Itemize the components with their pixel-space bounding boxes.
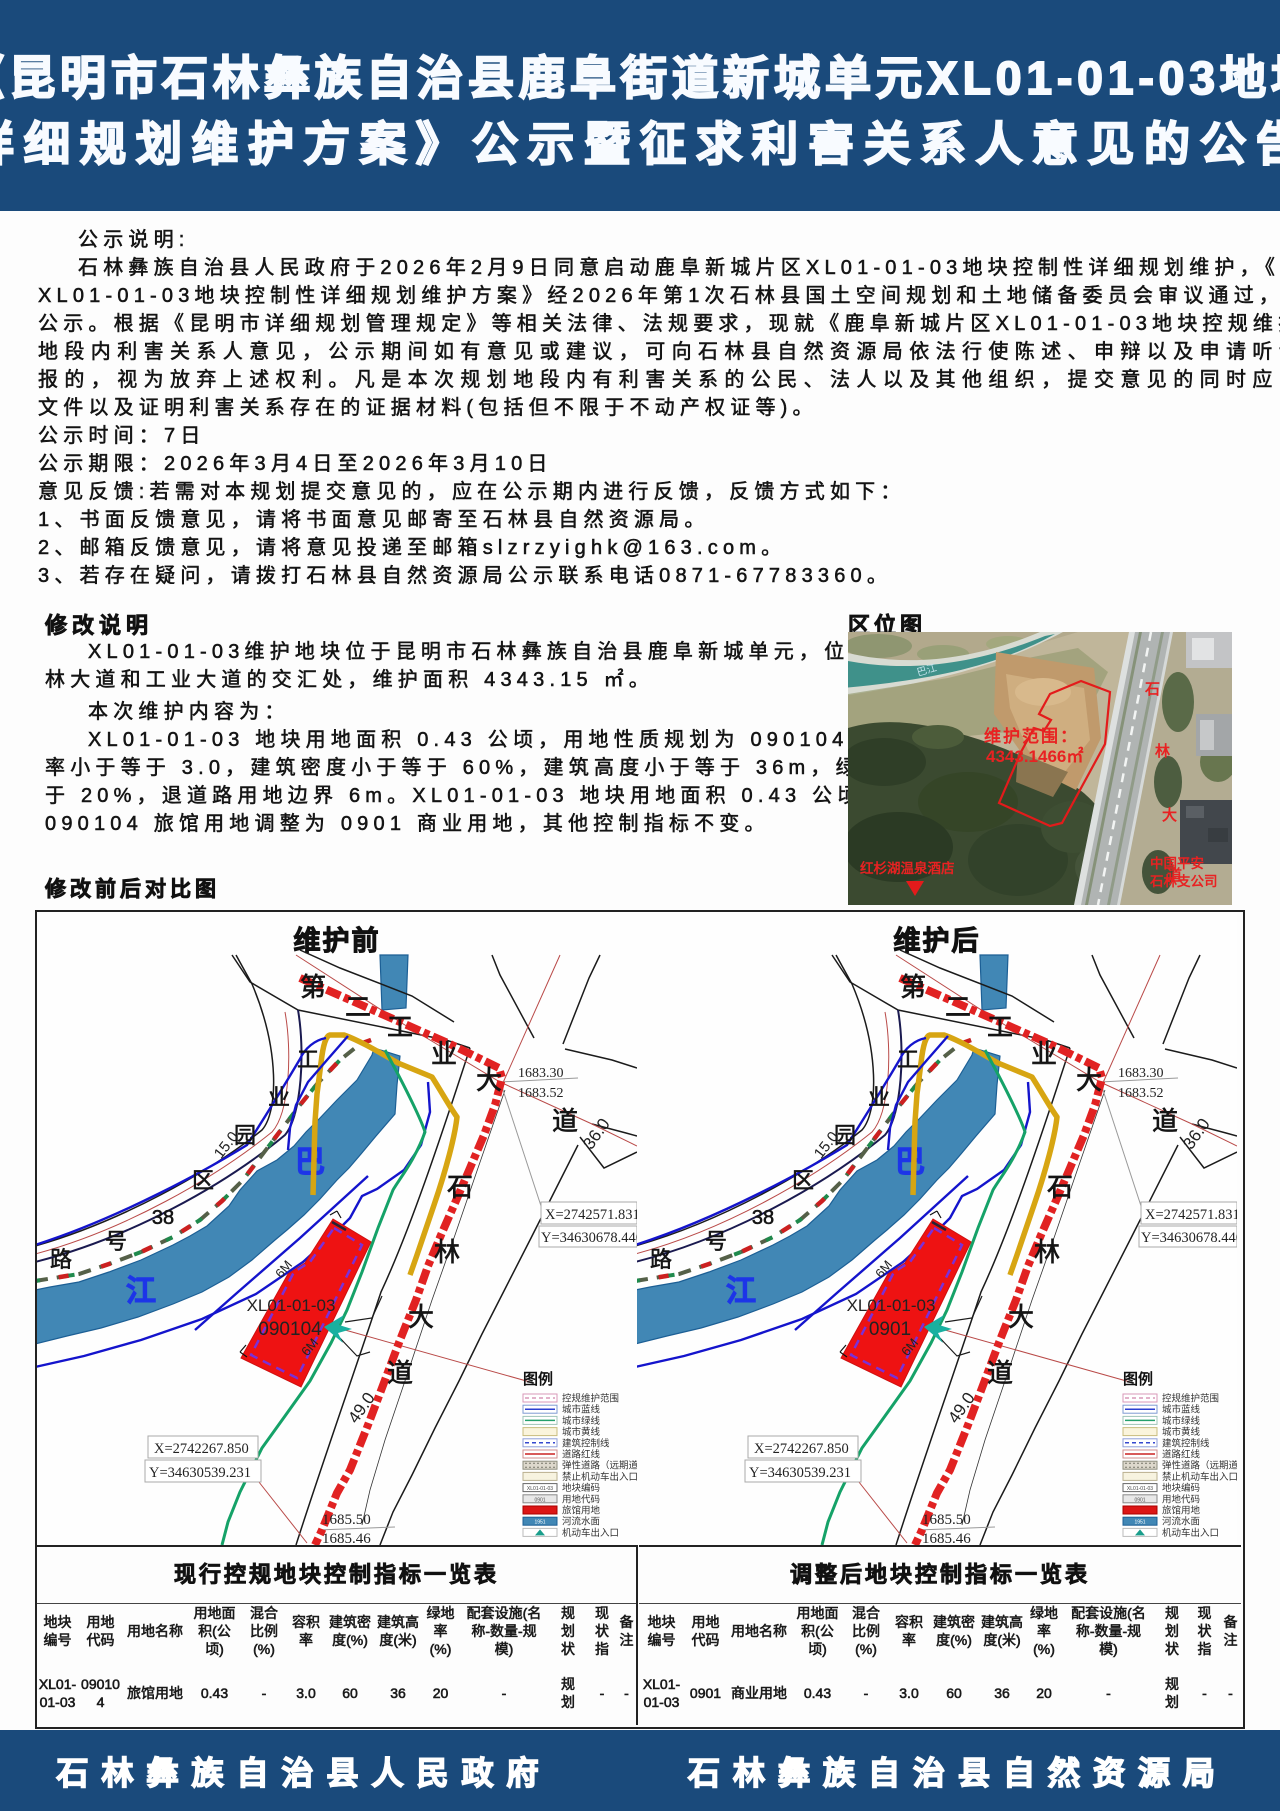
svg-text:林: 林: [1034, 1237, 1060, 1267]
svg-text:区: 区: [192, 1168, 214, 1193]
svg-text:机动车出入口: 机动车出入口: [562, 1527, 619, 1539]
svg-text:城市蓝线: 城市蓝线: [1162, 1404, 1201, 1416]
svg-text:建筑控制线: 建筑控制线: [562, 1437, 610, 1449]
svg-text:1951: 1951: [534, 1520, 545, 1526]
svg-text:维护后: 维护后: [894, 926, 981, 956]
svg-text:路: 路: [650, 1247, 672, 1272]
svg-text:1683.52: 1683.52: [1118, 1086, 1164, 1101]
svg-text:工: 工: [987, 1012, 1013, 1042]
svg-text:业: 业: [868, 1085, 890, 1110]
svg-text:道: 道: [987, 1358, 1013, 1388]
svg-text:城市黄线: 城市黄线: [1162, 1426, 1201, 1438]
svg-text:用地代码: 用地代码: [1162, 1493, 1200, 1505]
svg-text:X=2742571.831: X=2742571.831: [545, 1207, 637, 1223]
svg-text:1683.30: 1683.30: [518, 1066, 564, 1081]
svg-text:道: 道: [1152, 1106, 1178, 1136]
svg-text:城市绿线: 城市绿线: [562, 1415, 601, 1427]
svg-text:道路红线: 道路红线: [1162, 1449, 1201, 1461]
svg-text:号: 号: [705, 1229, 727, 1254]
svg-text:道路红线: 道路红线: [562, 1449, 601, 1461]
svg-text:维护范围：: 维护范围：: [984, 726, 1079, 746]
svg-text:X=2742267.850: X=2742267.850: [154, 1441, 249, 1457]
svg-text:巴: 巴: [895, 1146, 925, 1179]
svg-text:大: 大: [408, 1302, 434, 1332]
svg-text:XL01-01-03: XL01-01-03: [1127, 1486, 1153, 1492]
svg-text:图例: 图例: [1123, 1370, 1153, 1388]
svg-text:0901: 0901: [534, 1497, 545, 1503]
svg-text:工: 工: [897, 1047, 919, 1072]
svg-text:控规维护范围: 控规维护范围: [1162, 1393, 1219, 1405]
svg-text:X=2742267.850: X=2742267.850: [754, 1441, 849, 1457]
svg-text:Y=34630539.231: Y=34630539.231: [749, 1465, 851, 1481]
svg-text:禁止机动车出入口地段: 禁止机动车出入口地段: [1162, 1471, 1237, 1483]
svg-text:XL01-01-03: XL01-01-03: [247, 1296, 336, 1315]
svg-text:建筑控制线: 建筑控制线: [1162, 1437, 1210, 1449]
svg-text:大: 大: [1162, 806, 1177, 824]
svg-text:图例: 图例: [523, 1370, 553, 1388]
svg-text:区: 区: [792, 1168, 814, 1193]
svg-text:机动车出入口: 机动车出入口: [1162, 1527, 1219, 1539]
svg-text:工: 工: [387, 1012, 413, 1042]
svg-text:X=2742571.831: X=2742571.831: [1145, 1207, 1237, 1223]
svg-text:38: 38: [152, 1207, 174, 1229]
svg-text:业: 业: [268, 1085, 290, 1110]
svg-text:业: 业: [431, 1039, 457, 1069]
svg-text:XL01-01-03: XL01-01-03: [527, 1486, 553, 1492]
svg-text:路: 路: [50, 1247, 72, 1272]
svg-text:1951: 1951: [1134, 1520, 1145, 1526]
svg-text:大: 大: [1008, 1302, 1034, 1332]
svg-text:石林支公司: 石林支公司: [1149, 873, 1218, 889]
svg-text:城市黄线: 城市黄线: [562, 1426, 601, 1438]
svg-text:河流水面: 河流水面: [562, 1516, 600, 1528]
svg-text:江: 江: [126, 1275, 156, 1308]
svg-text:090104: 090104: [258, 1319, 322, 1340]
svg-text:第: 第: [300, 972, 326, 1002]
svg-text:4343.1466㎡: 4343.1466㎡: [986, 746, 1083, 766]
svg-text:Y=34630539.231: Y=34630539.231: [149, 1465, 251, 1481]
svg-text:1683.30: 1683.30: [1118, 1066, 1164, 1081]
svg-text:道: 道: [552, 1106, 578, 1136]
svg-text:1685.50: 1685.50: [922, 1512, 971, 1528]
svg-text:林: 林: [434, 1237, 460, 1267]
svg-text:工: 工: [297, 1047, 319, 1072]
svg-text:城市绿线: 城市绿线: [1162, 1415, 1201, 1427]
svg-text:号: 号: [105, 1229, 127, 1254]
svg-text:中国平安: 中国平安: [1150, 855, 1204, 871]
svg-text:旅馆用地: 旅馆用地: [562, 1505, 601, 1517]
svg-text:维护前: 维护前: [294, 925, 381, 956]
svg-text:Y=34630678.446: Y=34630678.446: [1141, 1230, 1237, 1246]
svg-text:第: 第: [900, 972, 926, 1002]
svg-text:弹性道路（远期道路）: 弹性道路（远期道路）: [562, 1460, 637, 1472]
svg-text:业: 业: [1031, 1039, 1057, 1069]
svg-text:禁止机动车出入口地段: 禁止机动车出入口地段: [562, 1471, 637, 1483]
svg-text:河流水面: 河流水面: [1162, 1516, 1200, 1528]
svg-text:旅馆用地: 旅馆用地: [1162, 1505, 1201, 1517]
svg-text:1685.50: 1685.50: [322, 1512, 371, 1528]
svg-text:1683.52: 1683.52: [518, 1086, 564, 1101]
svg-text:石: 石: [1047, 1172, 1073, 1202]
svg-text:控规维护范围: 控规维护范围: [562, 1393, 619, 1405]
svg-text:0901: 0901: [1134, 1497, 1145, 1503]
svg-text:二: 二: [345, 992, 371, 1022]
svg-text:用地代码: 用地代码: [562, 1493, 600, 1505]
svg-text:大: 大: [476, 1065, 502, 1095]
svg-text:Y=34630678.446: Y=34630678.446: [541, 1230, 637, 1246]
svg-text:石: 石: [447, 1172, 473, 1202]
svg-text:二: 二: [945, 992, 971, 1022]
svg-text:弹性道路（远期道路）: 弹性道路（远期道路）: [1162, 1460, 1237, 1472]
svg-text:38: 38: [752, 1207, 774, 1229]
svg-text:江: 江: [726, 1275, 756, 1308]
svg-text:大: 大: [1076, 1065, 1102, 1095]
svg-text:地块编码: 地块编码: [562, 1482, 600, 1494]
svg-text:1685.46: 1685.46: [322, 1531, 371, 1545]
svg-text:0901: 0901: [869, 1319, 911, 1340]
svg-text:城市蓝线: 城市蓝线: [562, 1404, 601, 1416]
svg-text:地块编码: 地块编码: [1162, 1482, 1200, 1494]
svg-text:林: 林: [1155, 742, 1171, 760]
svg-text:石: 石: [1144, 681, 1160, 698]
svg-text:XL01-01-03: XL01-01-03: [847, 1296, 936, 1315]
svg-text:巴: 巴: [295, 1146, 325, 1179]
svg-text:道: 道: [387, 1358, 413, 1388]
svg-text:1685.46: 1685.46: [922, 1531, 971, 1545]
svg-text:红杉湖温泉酒店: 红杉湖温泉酒店: [860, 860, 955, 876]
